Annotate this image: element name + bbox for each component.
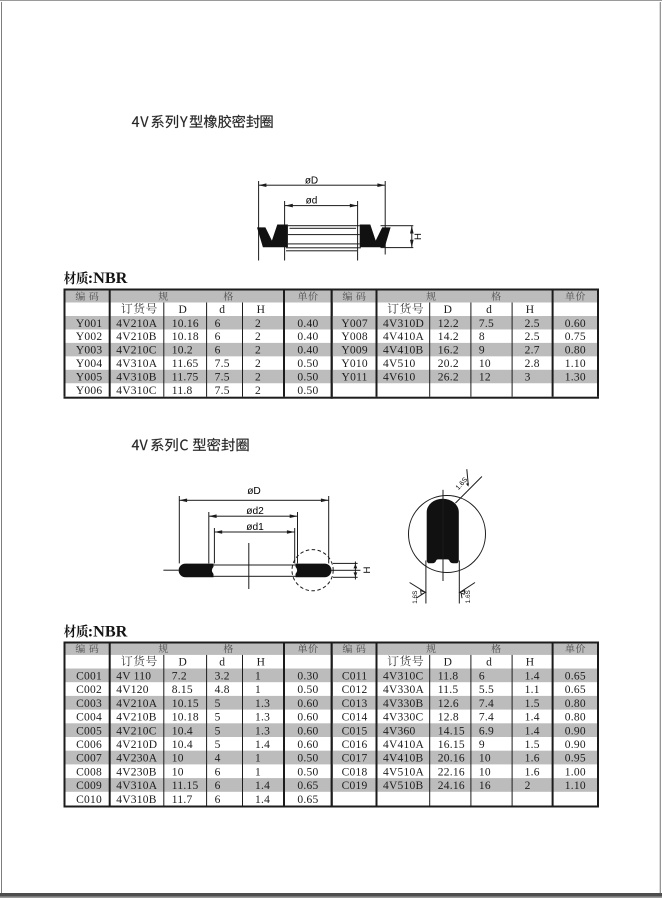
svg-text:7.5: 7.5 <box>215 358 230 370</box>
svg-text:0.65: 0.65 <box>297 794 318 806</box>
svg-text:4V210A: 4V210A <box>116 698 158 710</box>
svg-text:Y011: Y011 <box>342 372 368 384</box>
svg-text:1.10: 1.10 <box>565 358 586 370</box>
svg-text:2: 2 <box>525 780 531 792</box>
svg-text:Y001: Y001 <box>76 318 103 330</box>
svg-text:1.6S: 1.6S <box>412 591 419 604</box>
svg-text:C018: C018 <box>342 766 368 778</box>
svg-text:1.30: 1.30 <box>565 372 586 384</box>
svg-text:4V210C: 4V210C <box>116 725 157 737</box>
svg-text:0.95: 0.95 <box>565 753 586 765</box>
svg-text:C002: C002 <box>76 684 102 696</box>
svg-text:10.18: 10.18 <box>172 331 199 343</box>
svg-text:H: H <box>526 656 534 668</box>
svg-text:3: 3 <box>525 372 531 384</box>
svg-text:øD: øD <box>247 486 261 497</box>
svg-text:d: d <box>486 304 492 316</box>
svg-text:1: 1 <box>255 671 261 683</box>
svg-text:ød2: ød2 <box>246 506 264 517</box>
svg-text:12: 12 <box>479 372 491 384</box>
svg-text:1.4: 1.4 <box>525 671 540 683</box>
svg-text:4V310A: 4V310A <box>116 780 158 792</box>
svg-text:11.8: 11.8 <box>438 671 459 683</box>
svg-text:11.65: 11.65 <box>172 358 199 370</box>
svg-text:0.60: 0.60 <box>297 698 318 710</box>
svg-text:0.50: 0.50 <box>297 766 318 778</box>
svg-text:0.50: 0.50 <box>297 385 318 397</box>
svg-text:1.5: 1.5 <box>525 698 540 710</box>
svg-text:2.7: 2.7 <box>525 345 540 357</box>
svg-text:1.4: 1.4 <box>525 712 540 724</box>
svg-text:5: 5 <box>215 698 221 710</box>
svg-text:d: d <box>219 304 225 316</box>
svg-text:1.4: 1.4 <box>255 739 270 751</box>
svg-text:0.80: 0.80 <box>565 712 586 724</box>
svg-text:C012: C012 <box>342 684 368 696</box>
svg-text:0.40: 0.40 <box>297 345 318 357</box>
svg-text:5: 5 <box>215 739 221 751</box>
svg-text:26.2: 26.2 <box>438 372 459 384</box>
svg-text:11.8: 11.8 <box>172 385 193 397</box>
svg-text:6: 6 <box>215 345 221 357</box>
svg-text:H: H <box>257 656 265 668</box>
svg-text:H: H <box>526 304 534 316</box>
svg-text:0.40: 0.40 <box>297 318 318 330</box>
svg-text:11.7: 11.7 <box>172 794 193 806</box>
svg-text:0.30: 0.30 <box>297 671 318 683</box>
svg-text:10: 10 <box>479 753 491 765</box>
svg-text::NBR: :NBR <box>88 622 128 640</box>
svg-text:Y004: Y004 <box>76 358 103 370</box>
svg-text:0.65: 0.65 <box>297 780 318 792</box>
svg-text:6: 6 <box>215 331 221 343</box>
svg-text:D: D <box>444 656 452 668</box>
svg-text:1.3: 1.3 <box>255 725 270 737</box>
svg-text:1.4: 1.4 <box>255 794 270 806</box>
svg-text:1.00: 1.00 <box>565 766 586 778</box>
svg-text:3.2: 3.2 <box>215 671 230 683</box>
svg-text:Y009: Y009 <box>341 345 368 357</box>
svg-text:5: 5 <box>215 725 221 737</box>
svg-text:0.75: 0.75 <box>565 331 586 343</box>
svg-text:4V510: 4V510 <box>383 358 416 370</box>
svg-text:4V210B: 4V210B <box>116 331 157 343</box>
svg-text:2.8: 2.8 <box>525 358 540 370</box>
svg-text:C004: C004 <box>76 712 102 724</box>
svg-text:10.2: 10.2 <box>172 345 193 357</box>
svg-text:4: 4 <box>215 753 221 765</box>
svg-text:10: 10 <box>479 358 491 370</box>
svg-text:2.5: 2.5 <box>525 331 540 343</box>
svg-text:14.15: 14.15 <box>438 725 465 737</box>
svg-text:1.3: 1.3 <box>255 712 270 724</box>
svg-text:C019: C019 <box>342 780 368 792</box>
svg-text:Y005: Y005 <box>76 372 103 384</box>
svg-text:Y006: Y006 <box>76 385 103 397</box>
svg-text:5.5: 5.5 <box>479 684 494 696</box>
svg-text:20.16: 20.16 <box>438 753 465 765</box>
svg-text:8: 8 <box>479 331 485 343</box>
svg-text:0.40: 0.40 <box>297 331 318 343</box>
svg-text:6: 6 <box>479 671 485 683</box>
svg-text:4V310B: 4V310B <box>116 372 157 384</box>
svg-text:1.1: 1.1 <box>525 684 540 696</box>
svg-text:4V360: 4V360 <box>383 725 416 737</box>
svg-text:0.50: 0.50 <box>297 372 318 384</box>
svg-text:1.5: 1.5 <box>525 739 540 751</box>
svg-text:0.60: 0.60 <box>297 725 318 737</box>
svg-text:2: 2 <box>255 318 261 330</box>
svg-text:C005: C005 <box>76 725 102 737</box>
svg-text:12.2: 12.2 <box>438 318 459 330</box>
svg-text:1.4: 1.4 <box>255 780 270 792</box>
svg-text:H: H <box>361 567 372 574</box>
svg-text:6: 6 <box>215 780 221 792</box>
svg-text:C008: C008 <box>76 766 102 778</box>
svg-text:10: 10 <box>172 766 184 778</box>
svg-text:0.50: 0.50 <box>297 684 318 696</box>
svg-text:C009: C009 <box>76 780 102 792</box>
svg-text:C001: C001 <box>76 671 102 683</box>
svg-text:4V510B: 4V510B <box>383 780 424 792</box>
svg-text:2: 2 <box>255 358 261 370</box>
svg-text:D: D <box>444 304 452 316</box>
svg-text:5: 5 <box>215 712 221 724</box>
svg-text:0.50: 0.50 <box>297 358 318 370</box>
svg-text:4V210D: 4V210D <box>116 739 157 751</box>
svg-text:0.60: 0.60 <box>565 318 586 330</box>
svg-text:Y010: Y010 <box>341 358 368 370</box>
svg-text:D: D <box>179 304 187 316</box>
svg-text:4V310A: 4V310A <box>116 358 158 370</box>
svg-text:11.15: 11.15 <box>172 780 199 792</box>
svg-text:7.5: 7.5 <box>215 372 230 384</box>
svg-text:14.2: 14.2 <box>438 331 459 343</box>
svg-text:H: H <box>412 233 423 240</box>
svg-text:4V310B: 4V310B <box>116 794 157 806</box>
svg-text:4.8: 4.8 <box>215 684 230 696</box>
svg-text:7.5: 7.5 <box>479 318 494 330</box>
svg-text:2: 2 <box>255 345 261 357</box>
svg-text:7.4: 7.4 <box>479 698 494 710</box>
svg-text:0.65: 0.65 <box>565 671 586 683</box>
svg-text:0.80: 0.80 <box>565 698 586 710</box>
svg-text:C015: C015 <box>342 725 368 737</box>
svg-text:0.60: 0.60 <box>297 712 318 724</box>
svg-text:12.8: 12.8 <box>438 712 459 724</box>
svg-text:9: 9 <box>479 739 485 751</box>
svg-text:8.15: 8.15 <box>172 684 193 696</box>
svg-text:Y007: Y007 <box>341 318 368 330</box>
svg-text:4V 110: 4V 110 <box>116 671 151 683</box>
svg-text:4V120: 4V120 <box>116 684 149 696</box>
svg-text:10.15: 10.15 <box>172 698 199 710</box>
svg-text:0.90: 0.90 <box>565 739 586 751</box>
svg-text:2: 2 <box>255 385 261 397</box>
svg-text:7.4: 7.4 <box>479 712 494 724</box>
svg-text:4V210B: 4V210B <box>116 712 157 724</box>
svg-text:11.5: 11.5 <box>438 684 459 696</box>
svg-text:4V330A: 4V330A <box>383 684 425 696</box>
svg-text:d: d <box>486 656 492 668</box>
svg-text:C014: C014 <box>342 712 368 724</box>
svg-text:C010: C010 <box>76 794 102 806</box>
svg-text:6: 6 <box>215 766 221 778</box>
svg-text:0.80: 0.80 <box>565 345 586 357</box>
svg-text:16.15: 16.15 <box>438 739 465 751</box>
svg-text:4V410A: 4V410A <box>383 331 425 343</box>
svg-text:4V210A: 4V210A <box>116 318 158 330</box>
svg-text:4V610: 4V610 <box>383 372 416 384</box>
svg-text:10.4: 10.4 <box>172 739 193 751</box>
svg-text:9: 9 <box>479 345 485 357</box>
svg-text:2: 2 <box>255 331 261 343</box>
svg-text:1.6: 1.6 <box>525 753 540 765</box>
svg-text:4V410A: 4V410A <box>383 739 425 751</box>
svg-text:C016: C016 <box>342 739 368 751</box>
svg-text:6: 6 <box>215 794 221 806</box>
svg-text:1.4: 1.4 <box>525 725 540 737</box>
svg-text:4V330C: 4V330C <box>383 712 424 724</box>
svg-text:20.2: 20.2 <box>438 358 459 370</box>
svg-text:6: 6 <box>215 318 221 330</box>
svg-text:1.3: 1.3 <box>255 698 270 710</box>
svg-text:H: H <box>257 304 265 316</box>
svg-text:1.6S: 1.6S <box>465 590 472 603</box>
svg-text:16.2: 16.2 <box>438 345 459 357</box>
svg-text:4V310C: 4V310C <box>383 671 424 683</box>
svg-text:12.6: 12.6 <box>438 698 459 710</box>
svg-text:C017: C017 <box>342 753 368 765</box>
svg-text:C003: C003 <box>76 698 102 710</box>
svg-text:d: d <box>219 656 225 668</box>
svg-text:1: 1 <box>255 766 261 778</box>
svg-text:4V230A: 4V230A <box>116 753 158 765</box>
svg-text::NBR: :NBR <box>88 269 128 287</box>
svg-text:10.4: 10.4 <box>172 725 193 737</box>
svg-text:C011: C011 <box>342 671 368 683</box>
svg-text:C007: C007 <box>76 753 102 765</box>
svg-text:4V210C: 4V210C <box>116 345 157 357</box>
svg-text:6.9: 6.9 <box>479 725 494 737</box>
svg-text:D: D <box>179 656 187 668</box>
svg-text:10: 10 <box>479 766 491 778</box>
svg-text:4V410B: 4V410B <box>383 753 424 765</box>
svg-text:7.5: 7.5 <box>215 385 230 397</box>
svg-text:Y003: Y003 <box>76 345 103 357</box>
svg-text:4V310C: 4V310C <box>116 385 157 397</box>
svg-text:4V410B: 4V410B <box>383 345 424 357</box>
svg-text:1.10: 1.10 <box>565 780 586 792</box>
svg-text:10.18: 10.18 <box>172 712 199 724</box>
svg-text:1.6: 1.6 <box>525 766 540 778</box>
svg-text:4V230B: 4V230B <box>116 766 157 778</box>
svg-text:ød: ød <box>306 196 318 207</box>
svg-text:0.65: 0.65 <box>565 684 586 696</box>
svg-text:Y002: Y002 <box>76 331 103 343</box>
svg-text:22.16: 22.16 <box>438 766 465 778</box>
svg-text:Y008: Y008 <box>341 331 368 343</box>
svg-text:7.2: 7.2 <box>172 671 187 683</box>
svg-text:4V330B: 4V330B <box>383 698 424 710</box>
svg-text:0.90: 0.90 <box>565 725 586 737</box>
svg-text:1: 1 <box>255 753 261 765</box>
svg-text:2: 2 <box>255 372 261 384</box>
svg-text:24.16: 24.16 <box>438 780 465 792</box>
svg-text:C013: C013 <box>342 698 368 710</box>
svg-text:16: 16 <box>479 780 491 792</box>
svg-text:0.60: 0.60 <box>297 739 318 751</box>
svg-text:C006: C006 <box>76 739 102 751</box>
svg-text:11.75: 11.75 <box>172 372 199 384</box>
svg-text:0.50: 0.50 <box>297 753 318 765</box>
svg-text:10: 10 <box>172 753 184 765</box>
svg-text:2.5: 2.5 <box>525 318 540 330</box>
svg-text:10.16: 10.16 <box>172 318 199 330</box>
svg-text:1: 1 <box>255 684 261 696</box>
svg-text:4V510A: 4V510A <box>383 766 425 778</box>
svg-text:4V310D: 4V310D <box>383 318 424 330</box>
